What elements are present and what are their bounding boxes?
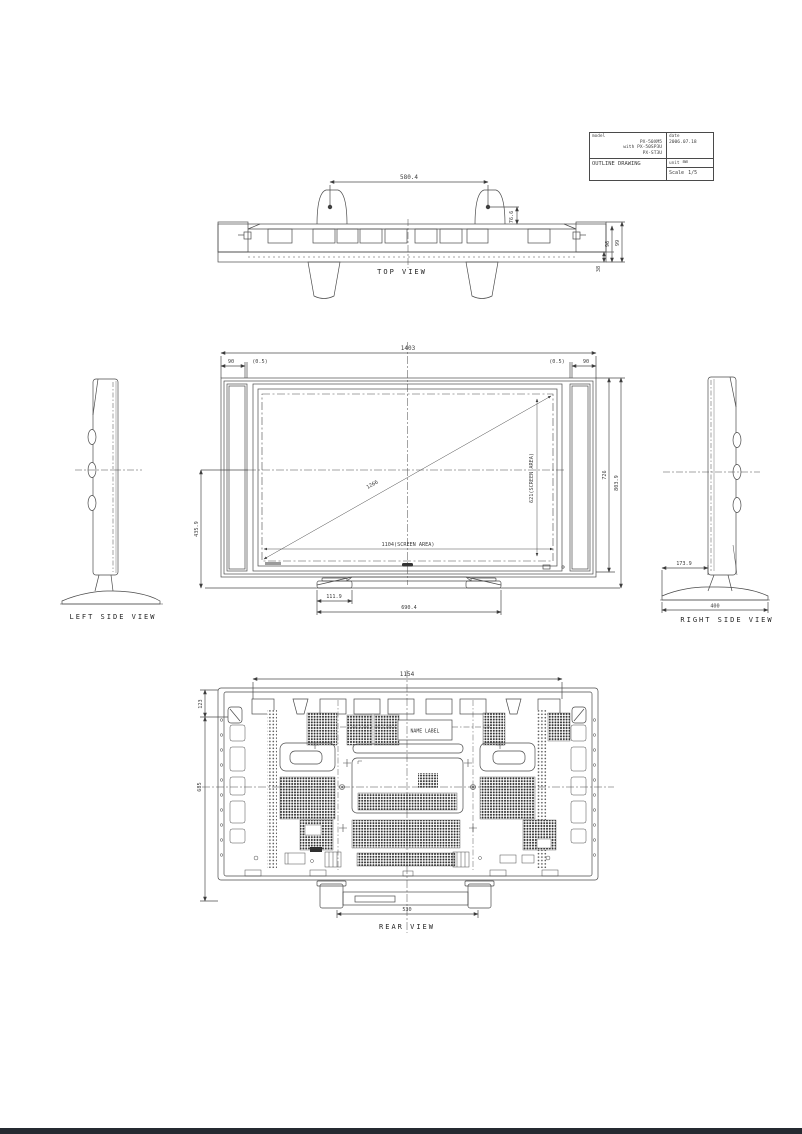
dim-feet-pitch: 690.4 [401, 605, 417, 611]
rear-view-drawing [200, 670, 614, 933]
model-line-3: PX-ST3U [592, 151, 662, 157]
date-value: 2006.07.18 [669, 140, 711, 146]
model-label: model [592, 134, 605, 139]
scale-label: Scale [669, 170, 684, 176]
unit-value: mm [683, 160, 689, 166]
right-side-view: 173.9 400 RIGHT SIDE VIEW [648, 355, 802, 627]
front-view: 1403 90 (0.5) (0.5) 90 1266 621(SCREEN A… [175, 338, 635, 623]
dim-total-height: 803.9 [614, 475, 620, 491]
dim-base-depth: 400 [710, 604, 719, 610]
unit-label: unit [669, 161, 680, 167]
right-side-drawing [660, 377, 770, 613]
top-view-drawing [218, 182, 625, 299]
dim-top-offset: 123 [198, 699, 204, 708]
scale-value: 1/5 [688, 170, 697, 176]
dim-diagonal: 1266 [366, 479, 380, 490]
rear-view-label: REAR VIEW [379, 923, 435, 931]
front-view-drawing [201, 342, 625, 615]
mount-hole-markers [311, 741, 504, 832]
name-label-text: NAME LABEL [411, 729, 440, 735]
date-cell: date 2006.07.18 [667, 133, 713, 159]
dim-screen-width: 1104(SCREEN AREA) [381, 542, 434, 548]
scale-cell: Scale 1/5 [667, 168, 713, 178]
left-side-view: LEFT SIDE VIEW [55, 360, 205, 625]
rear-top-slots [252, 699, 560, 714]
left-side-drawing [60, 379, 163, 604]
dim-right-gap: (0.5) [549, 359, 565, 365]
dim-stand-pitch: 580.4 [400, 174, 418, 181]
dim-feet-pitch: 530 [402, 907, 411, 913]
rear-view: 1154 123 685 NAME LABEL 530 REAR VIEW [190, 665, 620, 940]
top-view-label: TOP VIEW [377, 268, 427, 276]
dim-right-bezel: 90 [583, 359, 589, 365]
dim-left-gap: (0.5) [252, 359, 268, 365]
unit-cell: unit mm [667, 159, 713, 168]
window-bottom-bar [0, 1128, 802, 1134]
drawing-sheet: model PX-50XM5 with PX-50SP3U PX-ST3U OU… [0, 0, 802, 1134]
dim-depth-total: 99 [615, 240, 621, 246]
top-view: 580.4 76.6 96 99 38 TOP VIEW [200, 163, 640, 308]
dim-left-bezel: 90 [228, 359, 234, 365]
dim-bottom-offset: 38 [596, 266, 602, 272]
left-side-view-label: LEFT SIDE VIEW [69, 613, 156, 621]
model-cell: model PX-50XM5 with PX-50SP3U PX-ST3U [590, 133, 666, 159]
dim-screen-height: 621(SCREEN AREA) [529, 453, 535, 503]
right-side-view-label: RIGHT SIDE VIEW [680, 616, 773, 624]
dim-mount-width: 1154 [400, 671, 415, 678]
dim-depth-body: 96 [605, 241, 611, 247]
dim-stand-depth: 76.6 [509, 211, 515, 224]
dim-panel-offset: 173.9 [676, 561, 692, 567]
dim-foot-width: 111.9 [326, 594, 342, 600]
dim-overall-width: 1403 [401, 345, 416, 352]
dim-mount-height: 685 [197, 782, 203, 791]
title-block-right: date 2006.07.18 unit mm Scale 1/5 [667, 133, 713, 180]
dim-panel-height: 726 [602, 470, 608, 479]
